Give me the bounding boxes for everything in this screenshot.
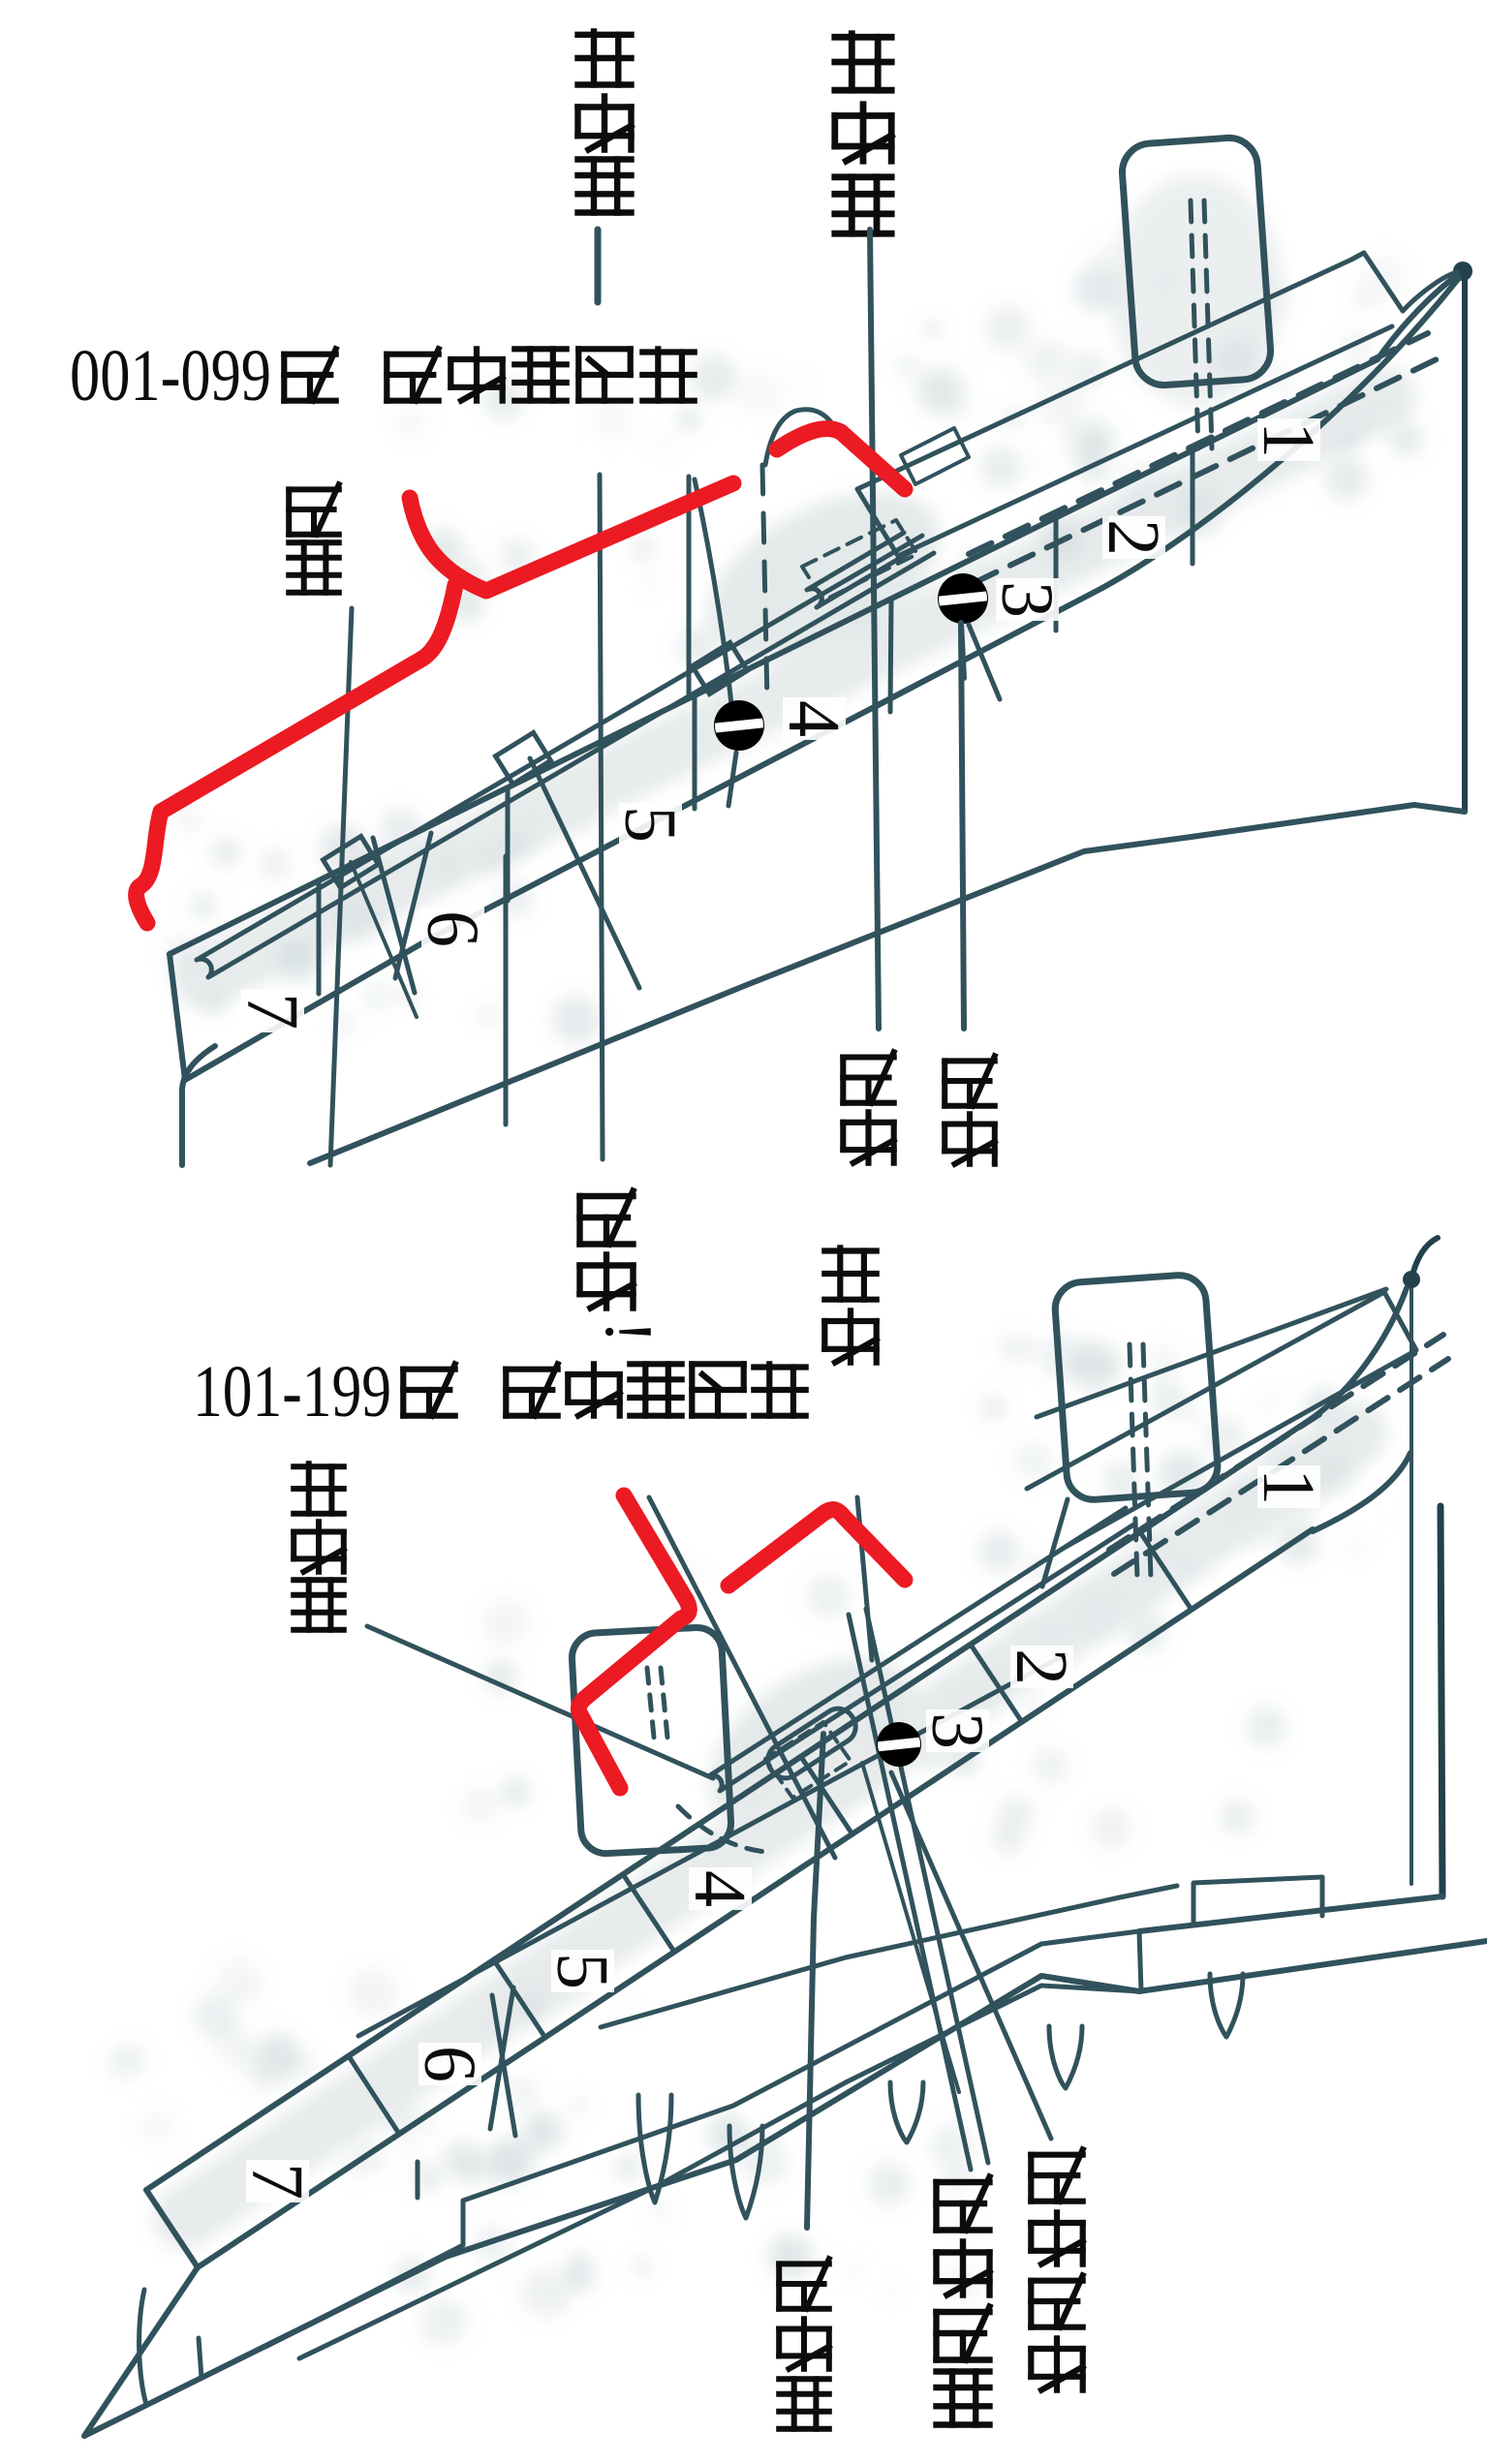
svg-text:2: 2 bbox=[1093, 519, 1174, 556]
svg-text:7: 7 bbox=[232, 993, 313, 1030]
svg-text:3: 3 bbox=[986, 581, 1068, 618]
svg-text:1: 1 bbox=[1248, 1468, 1329, 1505]
svg-text:001-099: 001-099 bbox=[70, 335, 271, 416]
svg-text:5: 5 bbox=[609, 806, 691, 843]
svg-text:2: 2 bbox=[1001, 1648, 1082, 1685]
svg-text:5: 5 bbox=[542, 1953, 623, 1989]
svg-text:101-199: 101-199 bbox=[193, 1351, 391, 1432]
svg-text:4: 4 bbox=[773, 700, 854, 737]
svg-text:7: 7 bbox=[236, 2163, 318, 2200]
svg-text:1: 1 bbox=[1248, 421, 1329, 458]
svg-text:4: 4 bbox=[679, 1870, 760, 1907]
svg-text:3: 3 bbox=[916, 1712, 998, 1749]
svg-text:6: 6 bbox=[412, 910, 493, 947]
svg-text:!: ! bbox=[591, 1320, 666, 1342]
svg-text:6: 6 bbox=[409, 2046, 490, 2082]
